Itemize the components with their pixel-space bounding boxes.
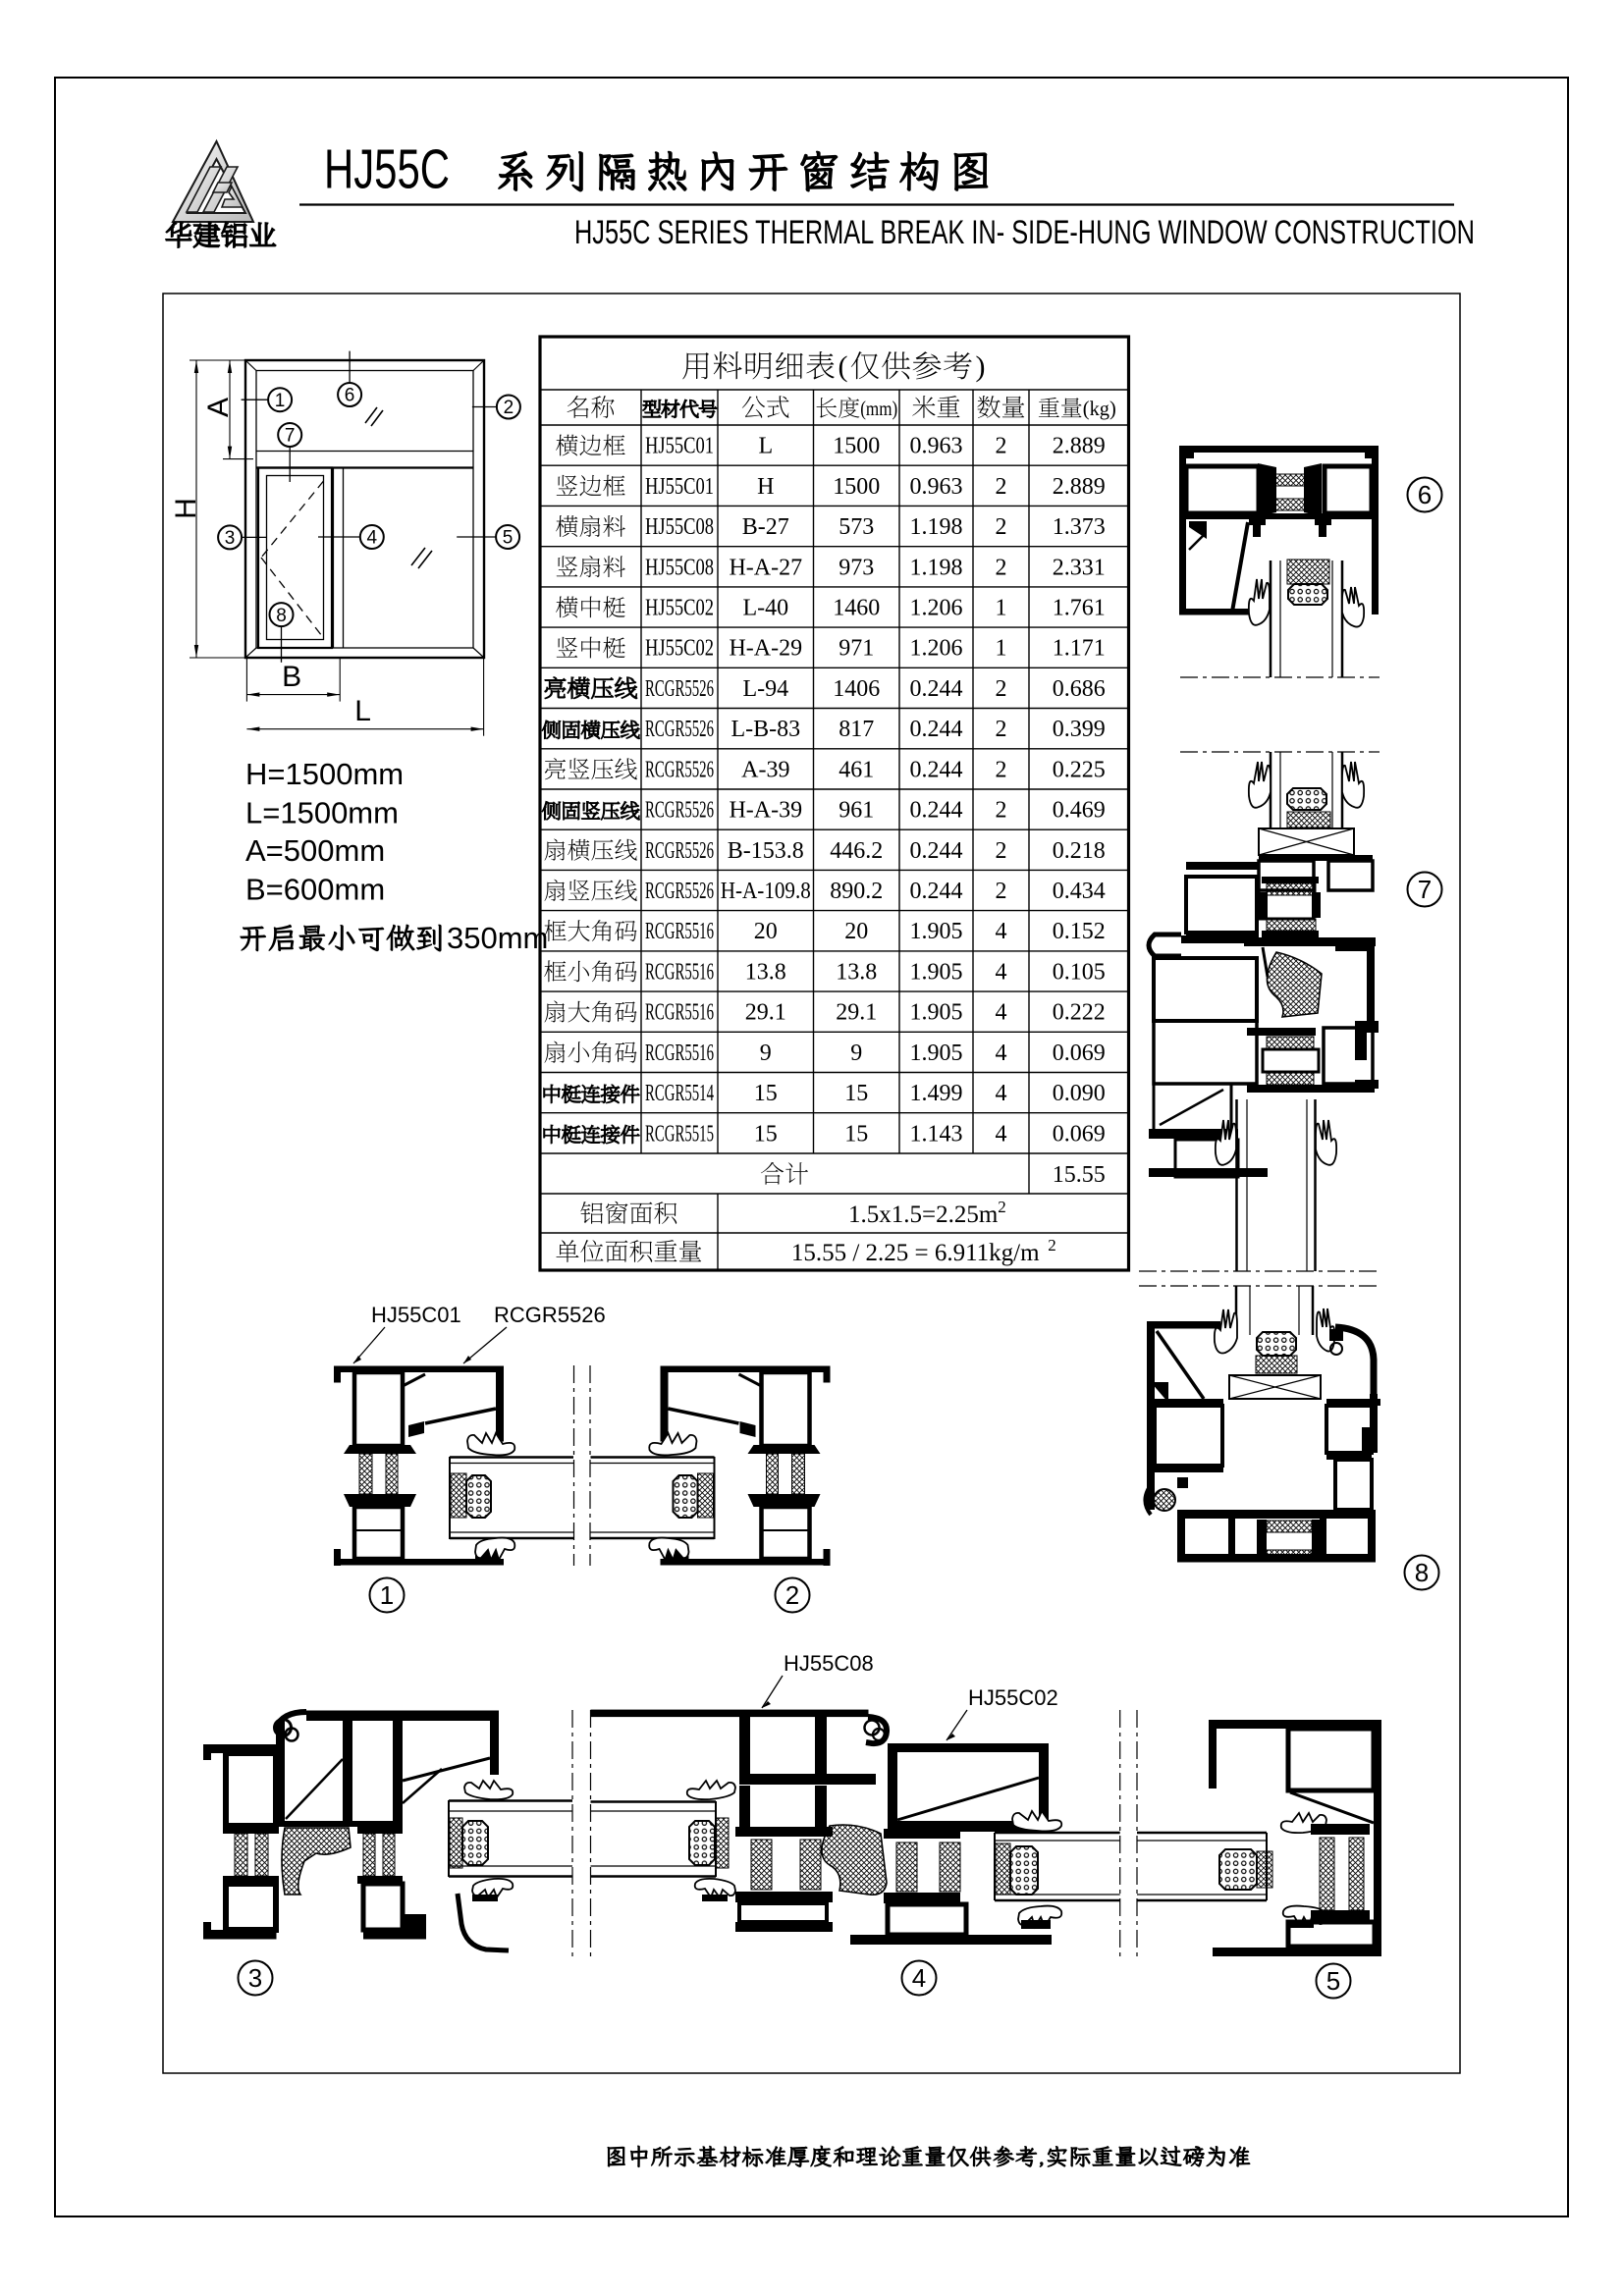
- svg-text:HJ55C08: HJ55C08: [645, 514, 714, 540]
- svg-text:29.1: 29.1: [745, 1000, 786, 1026]
- svg-text:1.499: 1.499: [910, 1081, 963, 1106]
- svg-text:B-27: B-27: [742, 514, 789, 540]
- svg-text:RCGR5526: RCGR5526: [645, 798, 714, 824]
- svg-text:2: 2: [996, 879, 1007, 904]
- svg-text:(mm): (mm): [860, 397, 897, 420]
- svg-text:0.244: 0.244: [910, 757, 963, 782]
- svg-text:2: 2: [996, 434, 1007, 459]
- svg-text:817: 817: [839, 717, 874, 742]
- svg-text:1.905: 1.905: [910, 1041, 963, 1066]
- svg-text:5: 5: [1326, 1966, 1340, 1996]
- svg-text:1.905: 1.905: [910, 960, 963, 986]
- svg-text:HJ55C08: HJ55C08: [645, 555, 714, 580]
- svg-text:1500: 1500: [833, 474, 880, 500]
- svg-text:0.152: 0.152: [1053, 919, 1106, 944]
- svg-text:4: 4: [996, 919, 1007, 944]
- svg-text:A: A: [202, 398, 235, 417]
- svg-text:1.5x1.5=2.25m: 1.5x1.5=2.25m: [848, 1201, 999, 1228]
- svg-text:L-B-83: L-B-83: [730, 717, 800, 742]
- svg-text:1.905: 1.905: [910, 919, 963, 944]
- svg-text:0.225: 0.225: [1053, 757, 1106, 782]
- svg-text:1: 1: [996, 596, 1007, 621]
- svg-text:0.105: 0.105: [1053, 960, 1106, 986]
- svg-text:0.069: 0.069: [1053, 1121, 1106, 1147]
- svg-text:0.222: 0.222: [1053, 1000, 1106, 1026]
- svg-text:H: H: [757, 474, 774, 500]
- svg-text:H-A-39: H-A-39: [729, 798, 802, 824]
- svg-text:): ): [976, 350, 986, 383]
- svg-text:L: L: [758, 434, 773, 459]
- svg-text:RCGR5515: RCGR5515: [645, 1121, 714, 1147]
- svg-text:B-153.8: B-153.8: [728, 838, 804, 864]
- svg-text:6: 6: [345, 386, 355, 406]
- svg-text:8: 8: [276, 606, 287, 626]
- svg-text:H-A-29: H-A-29: [729, 636, 802, 662]
- svg-text:461: 461: [839, 757, 874, 782]
- svg-text:961: 961: [839, 798, 874, 824]
- svg-text:2.331: 2.331: [1053, 555, 1106, 580]
- svg-text:RCGR5526: RCGR5526: [645, 879, 714, 904]
- svg-text:29.1: 29.1: [836, 1000, 877, 1026]
- svg-text:1.206: 1.206: [910, 596, 963, 621]
- svg-text:1460: 1460: [833, 596, 880, 621]
- svg-text:L-40: L-40: [742, 596, 788, 621]
- svg-text:RCGR5526: RCGR5526: [645, 757, 714, 782]
- svg-text:HJ55C02: HJ55C02: [645, 596, 714, 621]
- svg-text:A-39: A-39: [741, 757, 789, 782]
- svg-text:890.2: 890.2: [830, 879, 883, 904]
- svg-text:RCGR5526: RCGR5526: [494, 1303, 606, 1327]
- svg-text:4: 4: [996, 1121, 1007, 1147]
- svg-text:0.244: 0.244: [910, 838, 963, 864]
- svg-text:2: 2: [996, 838, 1007, 864]
- svg-text:1: 1: [380, 1580, 394, 1610]
- svg-text:RCGR5526: RCGR5526: [645, 838, 714, 864]
- svg-text:20: 20: [754, 919, 778, 944]
- svg-text:573: 573: [839, 514, 874, 540]
- svg-text:9: 9: [760, 1041, 772, 1066]
- svg-text:1.905: 1.905: [910, 1000, 963, 1026]
- svg-text:2: 2: [996, 514, 1007, 540]
- svg-text:0.399: 0.399: [1053, 717, 1106, 742]
- svg-text:(kg): (kg): [1083, 397, 1116, 420]
- svg-text:0.963: 0.963: [910, 434, 963, 459]
- svg-text:1.171: 1.171: [1053, 636, 1106, 662]
- svg-text:RCGR5516: RCGR5516: [645, 1041, 714, 1066]
- svg-text:1.206: 1.206: [910, 636, 963, 662]
- svg-text:15: 15: [754, 1081, 778, 1106]
- svg-text:2: 2: [996, 717, 1007, 742]
- svg-text:13.8: 13.8: [836, 960, 877, 986]
- svg-text:1.198: 1.198: [910, 555, 963, 580]
- svg-text:0.686: 0.686: [1053, 676, 1106, 702]
- svg-text:B: B: [282, 661, 301, 693]
- svg-text:4: 4: [996, 1081, 1007, 1106]
- svg-text:1: 1: [275, 391, 286, 411]
- svg-text:20: 20: [844, 919, 868, 944]
- svg-text:0.434: 0.434: [1053, 879, 1106, 904]
- svg-text:L-94: L-94: [742, 676, 788, 702]
- svg-text:0.069: 0.069: [1053, 1041, 1106, 1066]
- svg-text:1406: 1406: [833, 676, 880, 702]
- svg-text:2: 2: [996, 757, 1007, 782]
- svg-text:2: 2: [996, 474, 1007, 500]
- svg-text:15.55 / 2.25 = 6.911kg/m: 15.55 / 2.25 = 6.911kg/m: [791, 1240, 1040, 1266]
- svg-text:L=1500mm: L=1500mm: [245, 796, 399, 830]
- svg-text:13.8: 13.8: [745, 960, 786, 986]
- svg-text:2.889: 2.889: [1053, 474, 1106, 500]
- svg-text:1: 1: [996, 636, 1007, 662]
- svg-text:2: 2: [996, 676, 1007, 702]
- svg-text:HJ55C01: HJ55C01: [645, 434, 714, 459]
- svg-text:HJ55C SERIES THERMAL BREAK IN-: HJ55C SERIES THERMAL BREAK IN- SIDE-HUNG…: [574, 214, 1475, 251]
- svg-text:1.198: 1.198: [910, 514, 963, 540]
- svg-text:RCGR5526: RCGR5526: [645, 717, 714, 742]
- svg-text:5: 5: [503, 528, 514, 549]
- svg-text:0.090: 0.090: [1053, 1081, 1106, 1106]
- svg-text:H=1500mm: H=1500mm: [245, 757, 404, 791]
- svg-text:0.469: 0.469: [1053, 798, 1106, 824]
- svg-text:0.244: 0.244: [910, 676, 963, 702]
- svg-text:RCGR5516: RCGR5516: [645, 960, 714, 986]
- svg-text:4: 4: [996, 1041, 1007, 1066]
- svg-text:HJ55C08: HJ55C08: [784, 1651, 874, 1676]
- svg-text:RCGR5526: RCGR5526: [645, 676, 714, 702]
- svg-text:H: H: [170, 498, 202, 519]
- svg-text:1.143: 1.143: [910, 1121, 963, 1147]
- svg-text:HJ55C: HJ55C: [324, 138, 450, 201]
- svg-text:2: 2: [996, 798, 1007, 824]
- svg-text:15: 15: [844, 1081, 868, 1106]
- svg-text:RCGR5514: RCGR5514: [645, 1081, 714, 1106]
- svg-text:971: 971: [839, 636, 874, 662]
- svg-text:3: 3: [225, 528, 236, 549]
- svg-text:2: 2: [785, 1580, 799, 1610]
- svg-text:HJ55C02: HJ55C02: [968, 1685, 1058, 1710]
- svg-text:2: 2: [996, 555, 1007, 580]
- svg-text:973: 973: [839, 555, 874, 580]
- svg-text:H-A-109.8: H-A-109.8: [721, 879, 811, 904]
- svg-text:2: 2: [998, 1198, 1005, 1216]
- svg-text:15.55: 15.55: [1053, 1162, 1106, 1188]
- svg-text:H-A-27: H-A-27: [729, 555, 802, 580]
- svg-text:RCGR5516: RCGR5516: [645, 919, 714, 944]
- svg-text:2: 2: [504, 398, 514, 418]
- svg-text:0.963: 0.963: [910, 474, 963, 500]
- svg-text:(: (: [839, 350, 848, 383]
- svg-text:RCGR5516: RCGR5516: [645, 1000, 714, 1026]
- svg-text:B=600mm: B=600mm: [245, 873, 385, 907]
- svg-text:HJ55C01: HJ55C01: [371, 1303, 461, 1327]
- svg-text:1.373: 1.373: [1053, 514, 1106, 540]
- svg-text:6: 6: [1418, 480, 1432, 509]
- svg-text:HJ55C02: HJ55C02: [645, 636, 714, 662]
- svg-text:9: 9: [850, 1041, 862, 1066]
- svg-text:0.244: 0.244: [910, 879, 963, 904]
- svg-text:350mm: 350mm: [447, 921, 548, 955]
- svg-text:8: 8: [1415, 1558, 1429, 1587]
- svg-text:7: 7: [1418, 875, 1432, 904]
- svg-text:15: 15: [754, 1121, 778, 1147]
- svg-text:3: 3: [248, 1963, 262, 1993]
- svg-text:4: 4: [367, 528, 378, 549]
- svg-text:15: 15: [844, 1121, 868, 1147]
- svg-text:0.218: 0.218: [1053, 838, 1106, 864]
- svg-text:0.244: 0.244: [910, 798, 963, 824]
- svg-text:A=500mm: A=500mm: [245, 833, 385, 868]
- svg-text:0.244: 0.244: [910, 717, 963, 742]
- svg-text:1500: 1500: [833, 434, 880, 459]
- svg-text:2.889: 2.889: [1053, 434, 1106, 459]
- svg-text:2: 2: [1048, 1236, 1056, 1255]
- svg-text:4: 4: [996, 1000, 1007, 1026]
- svg-text:HJ55C01: HJ55C01: [645, 474, 714, 500]
- svg-text:4: 4: [996, 960, 1007, 986]
- svg-text:4: 4: [912, 1963, 926, 1993]
- svg-text:L: L: [354, 695, 371, 727]
- svg-text:446.2: 446.2: [830, 838, 883, 864]
- svg-text:7: 7: [285, 426, 296, 447]
- svg-text:1.761: 1.761: [1053, 596, 1106, 621]
